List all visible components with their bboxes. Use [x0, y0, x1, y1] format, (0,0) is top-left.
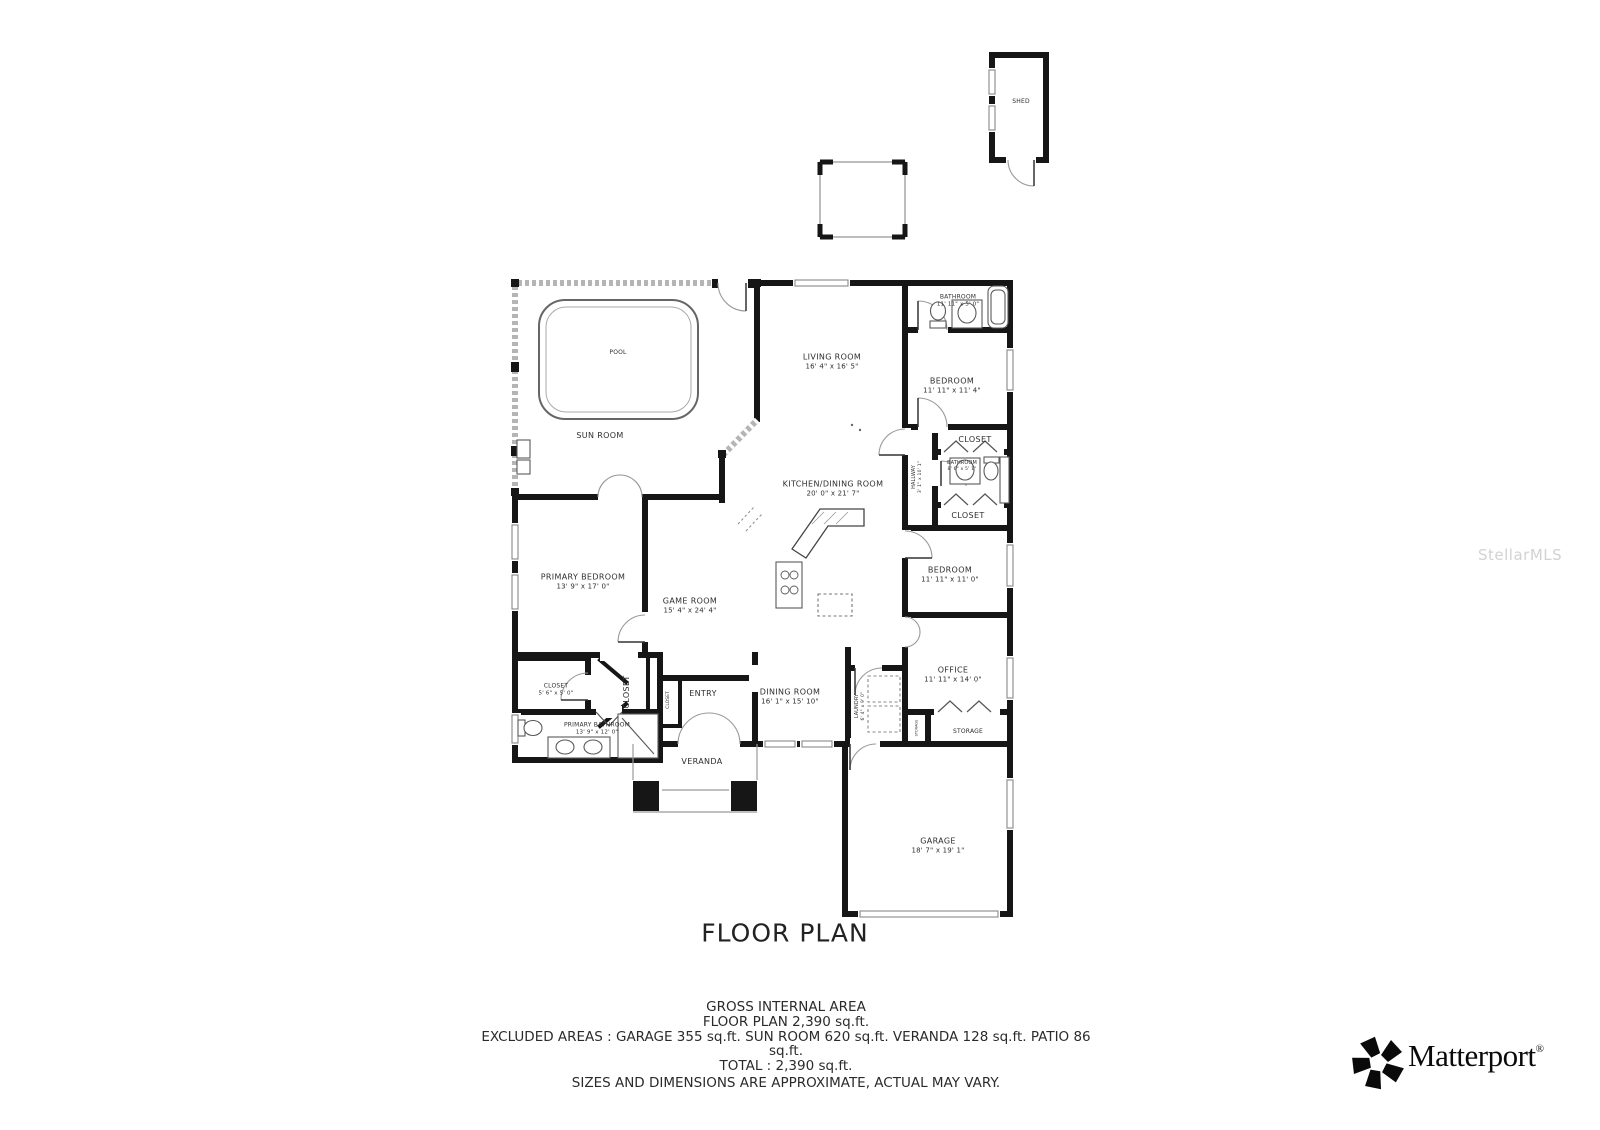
- matterport-wordmark: Matterport®: [1408, 1038, 1543, 1074]
- registered-mark: ®: [1536, 1043, 1544, 1055]
- room-label-hallway: HALLWAY 3' 1" x 10' 1": [911, 461, 923, 493]
- room-label-office: OFFICE 11' 11" x 14' 0": [924, 665, 982, 684]
- room-label-veranda: VERANDA: [681, 757, 722, 767]
- floor-plan-area: FLOOR PLAN 2,390 sq.ft.: [0, 1015, 1572, 1030]
- patio-outline: [820, 162, 905, 237]
- room-label-living-room: LIVING ROOM 16' 4" x 16' 5": [803, 352, 861, 371]
- room-label-kitchen-dining: KITCHEN/DINING ROOM 20' 0" x 21' 7": [783, 479, 884, 498]
- room-label-closet-1: CLOSET: [958, 435, 991, 445]
- room-label-shed: SHED: [1012, 98, 1030, 106]
- room-label-garage: GARAGE 18' 7" x 19' 1": [911, 836, 964, 855]
- room-label-storage: STORAGE: [953, 728, 983, 736]
- page-title: FLOOR PLAN: [701, 919, 868, 948]
- matterport-logo: Matterport®: [1350, 1038, 1543, 1074]
- room-label-bedroom-2: BEDROOM 11' 11" x 11' 0": [921, 565, 979, 584]
- room-label-sun-room: SUN ROOM: [576, 431, 623, 441]
- room-label-laundry: LAUNDRY 6' 4" x 9' 0": [854, 691, 866, 720]
- room-label-entry-closet: CLOSET: [666, 691, 672, 708]
- room-label-closet-2: CLOSET: [951, 511, 984, 521]
- room-label-closet-3: CLOSET 5' 6" x 5' 0": [539, 683, 574, 698]
- room-label-bathroom-2: BATHROOM 8' 6" x 5' 1": [947, 460, 977, 472]
- room-label-bathroom-1: BATHROOM 11' 11" x 5' 0": [937, 294, 979, 309]
- floor-plan-page: SHED POOL SUN ROOM LIVING ROOM 16' 4" x …: [0, 0, 1600, 1130]
- total-area: TOTAL : 2,390 sq.ft.: [0, 1059, 1572, 1074]
- floor-plan-drawing: [0, 0, 1600, 1130]
- area-summary: GROSS INTERNAL AREA FLOOR PLAN 2,390 sq.…: [0, 1000, 1572, 1091]
- gross-internal-area-label: GROSS INTERNAL AREA: [0, 1000, 1572, 1015]
- pool-outline: [539, 300, 698, 419]
- room-label-primary-closet: CLOSET: [622, 675, 632, 708]
- room-label-pool: POOL: [609, 349, 626, 357]
- room-label-entry: ENTRY: [689, 689, 717, 699]
- excluded-areas-wrap: sq.ft.: [0, 1044, 1572, 1059]
- room-label-primary-bedroom: PRIMARY BEDROOM 13' 9" x 17' 0": [541, 572, 626, 591]
- room-label-primary-bathroom: PRIMARY BATHROOM 13' 9" x 12' 0": [564, 722, 630, 737]
- room-label-dining-room: DINING ROOM 16' 1" x 15' 10": [760, 687, 821, 706]
- room-label-bedroom-1: BEDROOM 11' 11" x 11' 4": [923, 376, 981, 395]
- room-label-game-room: GAME ROOM 15' 4" x 24' 4": [663, 596, 717, 615]
- excluded-areas: EXCLUDED AREAS : GARAGE 355 sq.ft. SUN R…: [0, 1030, 1572, 1045]
- stellar-mls-watermark: StellarMLS: [1478, 546, 1562, 564]
- disclaimer: SIZES AND DIMENSIONS ARE APPROXIMATE, AC…: [0, 1076, 1572, 1091]
- room-label-storage-small: STORAGE: [915, 720, 920, 737]
